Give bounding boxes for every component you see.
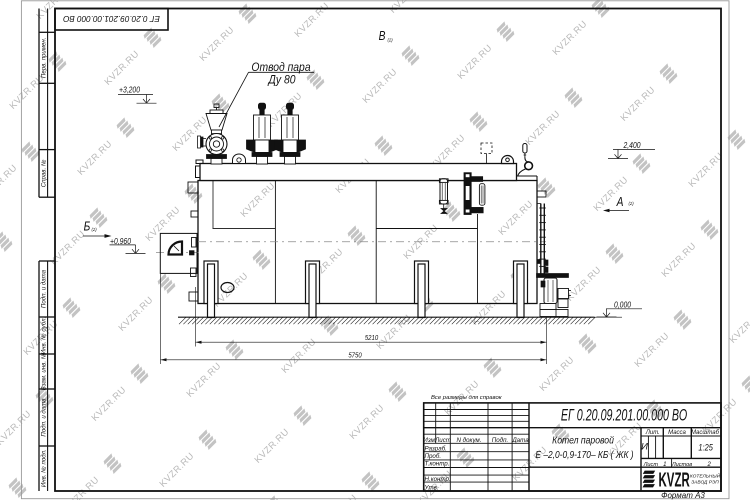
svg-text:KVZR.RU: KVZR.RU [185,361,223,399]
svg-text:Котел паровой: Котел паровой [552,435,614,447]
svg-text:KVZR.RU: KVZR.RU [497,199,535,237]
svg-text:Подп. и дата: Подп. и дата [41,269,48,308]
svg-text:KVZR.RU: KVZR.RU [198,25,236,63]
svg-text:2,400: 2,400 [623,140,642,150]
svg-text:Т.контр.: Т.контр. [425,461,450,468]
svg-text:ЕГ 0.20.09.201.00.000 ВО: ЕГ 0.20.09.201.00.000 ВО [63,14,160,23]
svg-text:А: А [616,196,624,209]
svg-text:KVZR.RU: KVZR.RU [361,67,399,105]
svg-text:Дата: Дата [511,437,529,444]
svg-text:Формат А3: Формат А3 [661,491,705,500]
svg-text:KVZR.RU: KVZR.RU [158,451,196,489]
svg-text:КОТЕЛЬНЫЙ: КОТЕЛЬНЫЙ [690,472,721,480]
svg-text:Ду 80: Ду 80 [267,74,296,87]
svg-text:KVZR.RU: KVZR.RU [633,331,671,369]
svg-text:+3,200: +3,200 [119,85,141,95]
svg-text:KVZR.RU: KVZR.RU [239,181,277,219]
svg-text:Утв.: Утв. [424,484,439,491]
svg-text:KVZR.RU: KVZR.RU [551,19,589,57]
svg-text:KVZR: KVZR [659,468,690,491]
svg-text:ЕГ 0.20.09.201.00.000 ВО: ЕГ 0.20.09.201.00.000 ВО [561,406,687,425]
svg-text:KVZR.RU: KVZR.RU [592,175,630,213]
svg-text:Подп.: Подп. [492,437,508,444]
svg-text:KVZR.RU: KVZR.RU [76,139,114,177]
svg-text:KVZR.RU: KVZR.RU [456,43,494,81]
svg-text:(2): (2) [388,38,394,43]
svg-text:Б: Б [84,220,91,233]
svg-text:KVZR.RU: KVZR.RU [388,0,426,15]
svg-text:KVZR.RU: KVZR.RU [470,289,508,327]
svg-text:Масштаб: Масштаб [691,430,720,436]
svg-text:KVZR.RU: KVZR.RU [565,265,603,303]
svg-text:Инв. № дубл.: Инв. № дубл. [41,317,48,354]
svg-text:KVZR.RU: KVZR.RU [0,163,19,201]
svg-text:+0,960: +0,960 [110,236,132,246]
svg-text:Инв. № подл.: Инв. № подл. [41,449,48,487]
svg-text:KVZR.RU: KVZR.RU [348,403,386,441]
svg-text:KVZR.RU: KVZR.RU [728,307,750,345]
svg-text:KVZR.RU: KVZR.RU [90,385,128,423]
svg-text:И: И [641,442,648,453]
svg-text:Масса: Масса [668,430,686,436]
svg-text:KVZR.RU: KVZR.RU [253,427,291,465]
svg-text:Справ. №: Справ. № [41,159,48,187]
svg-text:Лит.: Лит. [645,430,660,436]
svg-text:KVZR.RU: KVZR.RU [619,85,657,123]
svg-text:2: 2 [707,462,712,468]
svg-text:Подп. и дата: Подп. и дата [41,398,48,437]
svg-text:Все размеры для справок: Все размеры для справок [431,395,502,401]
svg-text:KVZR.RU: KVZR.RU [660,241,698,279]
svg-text:KVZR.RU: KVZR.RU [687,151,725,189]
svg-text:KVZR.RU: KVZR.RU [293,1,331,39]
svg-text:Перв. примен.: Перв. примен. [41,38,48,79]
svg-text:KVZR.RU: KVZR.RU [524,109,562,147]
svg-text:Лист: Лист [643,462,659,468]
svg-text:0,000: 0,000 [614,300,632,310]
svg-text:Разраб.: Разраб. [425,445,447,452]
svg-text:KVZR.RU: KVZR.RU [63,475,101,500]
svg-text:(2): (2) [629,201,635,206]
svg-text:5750: 5750 [348,352,362,360]
svg-text:ЗАВОД РЭП: ЗАВОД РЭП [691,479,719,485]
svg-text:Лист: Лист [434,437,451,444]
svg-text:(2): (2) [92,227,98,232]
svg-text:Взам. инв. №: Взам. инв. № [41,352,48,390]
svg-text:5210: 5210 [365,334,379,342]
svg-text:Н.контр.: Н.контр. [425,476,451,483]
svg-text:KVZR.RU: KVZR.RU [375,313,413,351]
svg-text:В: В [379,30,386,43]
svg-text:1:25: 1:25 [698,441,713,452]
svg-text:KVZR.RU: KVZR.RU [144,205,182,243]
svg-text:KVZR.RU: KVZR.RU [103,49,141,87]
svg-text:Проб.: Проб. [425,453,442,460]
svg-text:N докум.: N докум. [456,437,481,444]
svg-text:KVZR.RU: KVZR.RU [0,409,33,447]
svg-text:Е –2,0-0,9-170– КБ ( ЖК ): Е –2,0-0,9-170– КБ ( ЖК ) [535,449,633,461]
svg-text:KVZR.RU: KVZR.RU [117,295,155,333]
